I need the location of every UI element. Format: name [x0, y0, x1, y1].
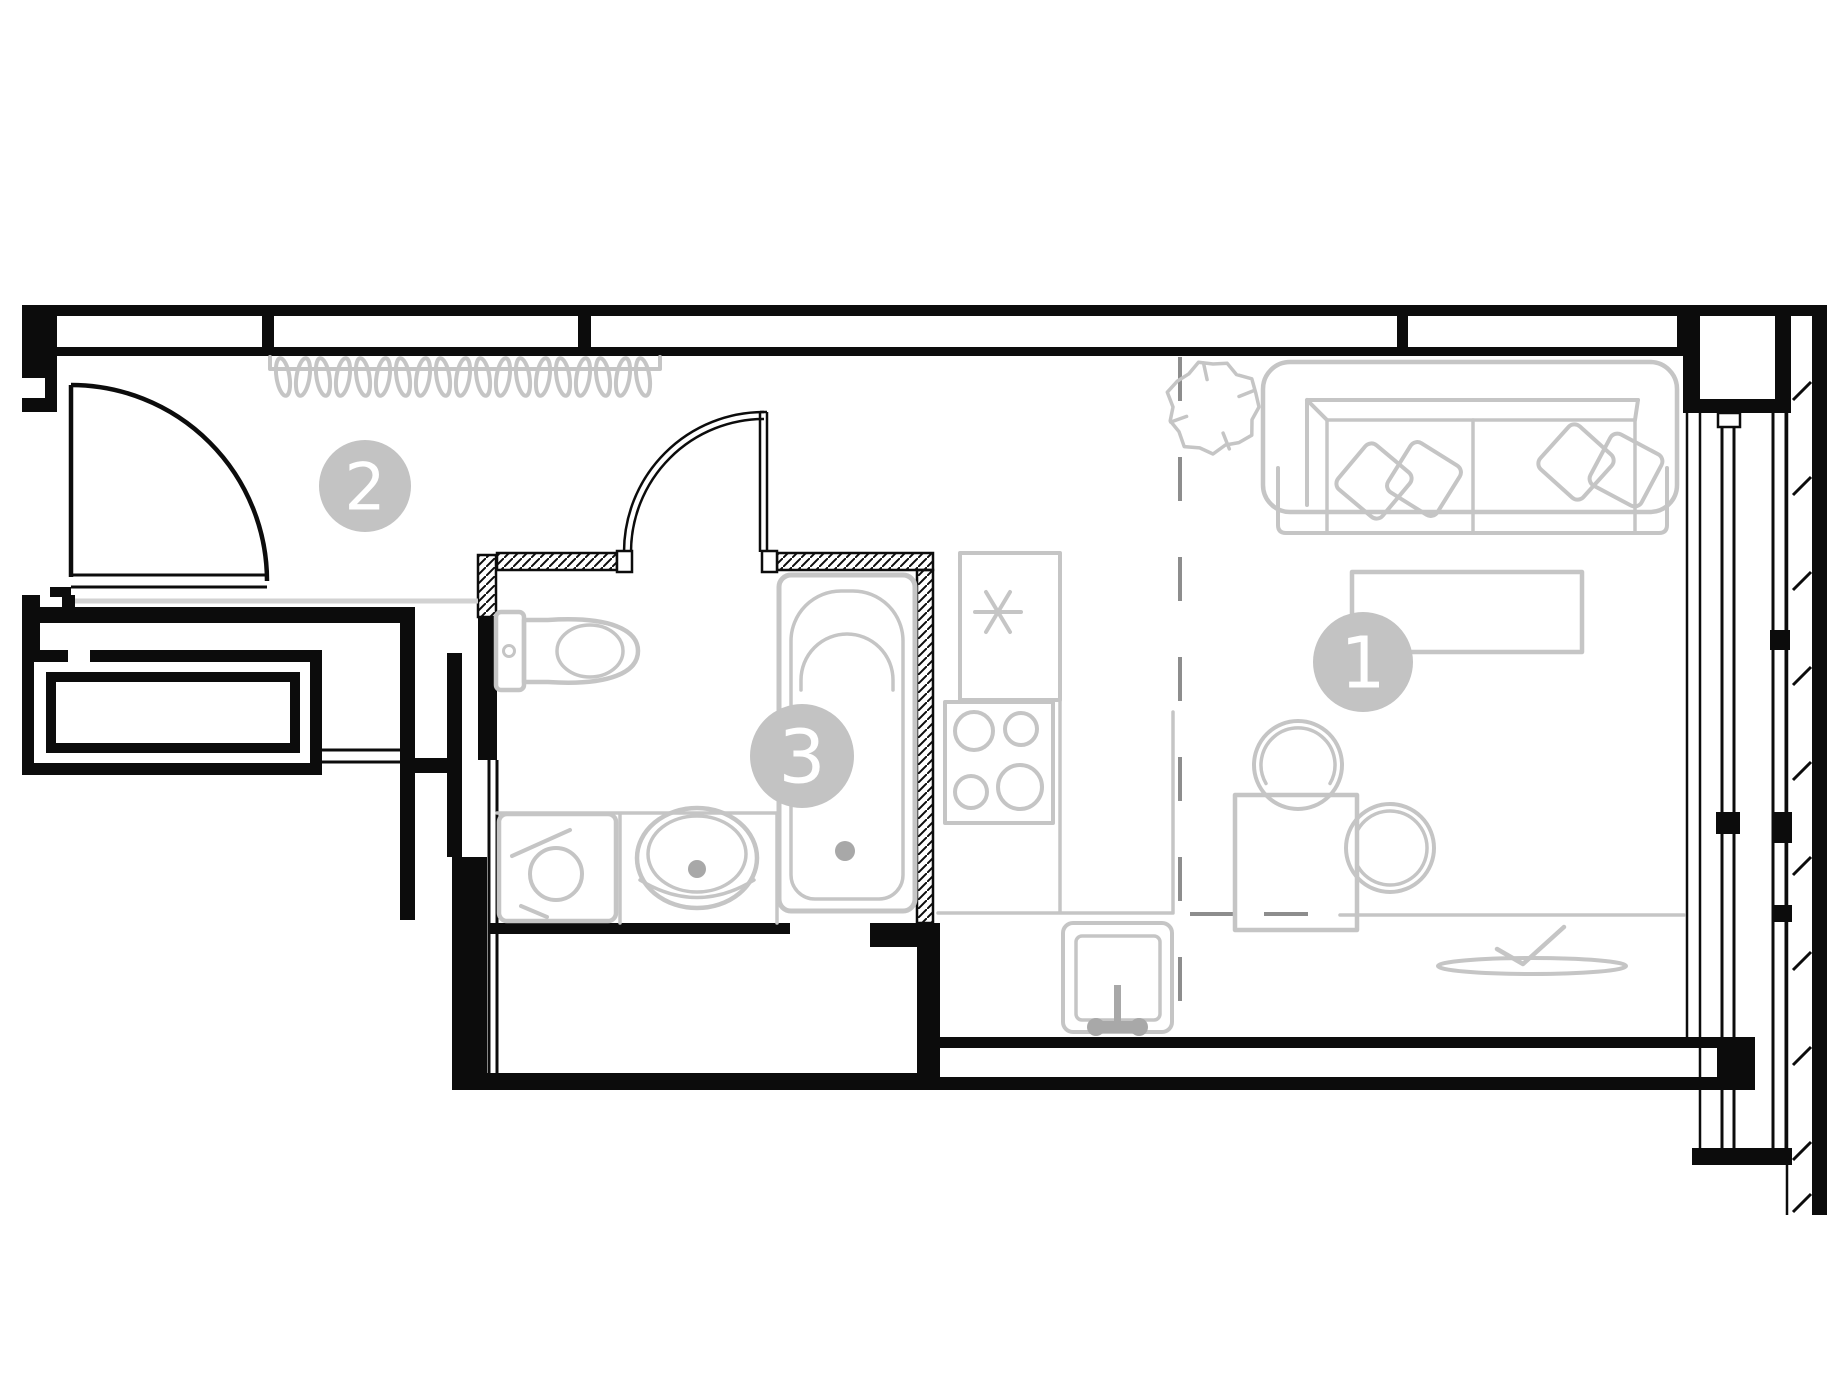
sofa-icon — [1263, 362, 1677, 533]
room-label-3: 3 — [750, 704, 854, 808]
coat-rack-icon — [270, 357, 660, 397]
toilet-icon — [496, 612, 638, 690]
entry-door — [71, 385, 267, 587]
refrigerator-symbol-icon — [975, 592, 1021, 632]
kitchen-counter — [938, 553, 1173, 913]
kitchen-sink-icon — [1063, 923, 1172, 1036]
svg-text:2: 2 — [344, 450, 385, 525]
bathroom-door — [624, 412, 767, 552]
decor-dish-icon — [1438, 958, 1626, 974]
bathroom-sink-icon — [637, 808, 757, 908]
zone-divider — [1180, 357, 1335, 1035]
tv-console — [1340, 915, 1684, 974]
stove-icon — [945, 702, 1053, 823]
floor-plan-page: 123 — [0, 0, 1840, 1390]
floor-plan-svg: 123 — [0, 0, 1840, 1390]
pillows-icon — [1333, 421, 1665, 522]
svg-text:1: 1 — [1340, 622, 1385, 705]
room-label-2: 2 — [319, 440, 411, 532]
svg-text:3: 3 — [778, 715, 825, 801]
room-label-1: 1 — [1313, 612, 1413, 712]
washing-machine-icon — [499, 814, 616, 921]
dining-table — [1235, 795, 1357, 930]
